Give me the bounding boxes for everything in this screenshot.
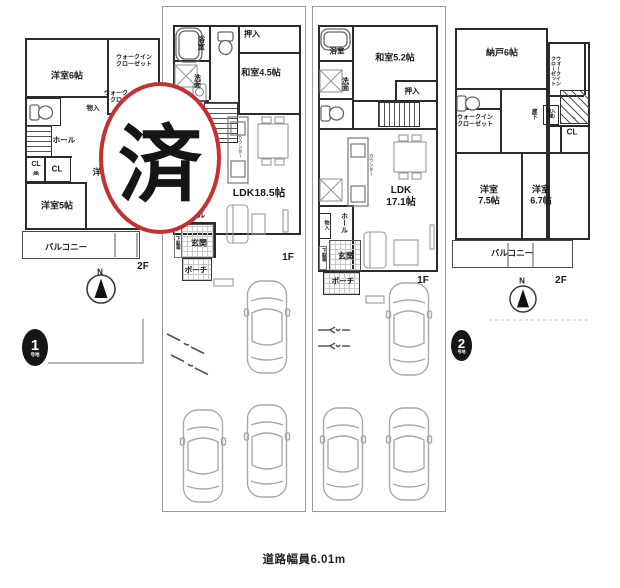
car-icon (245, 281, 290, 373)
room-label-cl1: CL (31, 161, 40, 169)
room-label-ldk: LDK 17.1帖 (386, 185, 415, 209)
compass-icon (87, 275, 115, 303)
kitchen-counter (348, 138, 368, 206)
shoe-cabinet-label: 下駄箱 (176, 236, 181, 250)
lot2-badge-suffix: 号地 (458, 350, 466, 354)
car-icon (245, 405, 290, 497)
lot1-badge-suffix: 号地 (31, 353, 40, 358)
porch-label: ポーチ (185, 267, 208, 276)
washer-pan-icon (320, 179, 342, 201)
balcony-label: バルコニー (45, 242, 87, 252)
room-label-wic-left: ウォークイン クローゼット (457, 115, 493, 129)
compass-north-label: N (97, 267, 103, 276)
washer-pan-icon (320, 70, 342, 92)
room-label-bath: 浴室 (330, 48, 345, 57)
toilet-icon (457, 96, 480, 111)
floor-label-1f: 1F (417, 275, 429, 287)
storage-label: 物入 (324, 220, 329, 230)
room-label-cl1-sub: (棚) (33, 172, 40, 177)
porch-step (214, 279, 384, 303)
balcony-ticks (115, 233, 137, 257)
floor-label-1f: 1F (282, 252, 294, 264)
floor-label-2f: 2F (555, 275, 567, 287)
sofa-tv (227, 205, 434, 268)
room-label-washitsu: 和室5.2帖 (375, 53, 415, 64)
room-label-oshiire: 押入 (244, 29, 260, 38)
room-label-oshiire: 押入 (405, 88, 420, 97)
compass-icon (510, 286, 536, 312)
room-label-ldk: LDK18.5帖 (233, 187, 286, 199)
boundary-line (48, 319, 143, 363)
balcony-label: バルコニー (491, 248, 533, 258)
lot2-badge: 2 号地 (451, 330, 472, 361)
room-label-wic-right: ウォークイン クローゼット (550, 56, 560, 86)
dining-table (394, 135, 426, 179)
room-label-cl2: CL (52, 164, 63, 173)
stray-tick: 、 (572, 111, 581, 122)
room-label-yoshitsu67: 洋室 6.7帖 (530, 184, 552, 205)
dining-table (258, 117, 288, 165)
room-label-washitsu: 和室4.5帖 (241, 68, 281, 79)
sold-stamp: 済 (99, 82, 221, 234)
slope-marks (318, 327, 350, 349)
car-icon (387, 283, 432, 375)
counter-label: カウンター (238, 136, 243, 159)
counter-label: カウンター (369, 154, 374, 177)
room-label-genkan: 玄関 (191, 238, 207, 247)
room-label-nando: 納戸6帖 (486, 48, 518, 59)
lot1-badge: 1 号地 (22, 329, 48, 366)
room-label-hall: ホール (53, 137, 76, 146)
room-label-yoshitsu75: 洋室 7.5帖 (478, 184, 500, 205)
sold-stamp-text: 済 (118, 98, 202, 219)
toilet-icon (321, 106, 344, 121)
lot1-badge-number: 1 (31, 338, 39, 353)
room-label-yoshitsu5: 洋室5帖 (41, 201, 73, 212)
room-label-senmen: 洗面 (194, 74, 201, 88)
toilet-icon (30, 105, 53, 120)
room-label-wic1: ウォークイン クローゼット (116, 55, 152, 69)
storage-label: 物入 (棚) (547, 109, 556, 120)
room-label-monoire: 物入 (87, 105, 100, 113)
floorplan-canvas: 洋室6帖 ウォークイン クローゼット ウォーク クロ 物入 ホール CL (棚)… (0, 0, 620, 588)
room-label-senmen: 洗面 (342, 77, 349, 91)
slope-marks (167, 334, 208, 375)
room-label-cl: CL (567, 127, 578, 136)
corridor-label: 廊下 (530, 109, 536, 120)
compass-north-label: N (519, 276, 525, 285)
car-icon (321, 408, 366, 500)
room-label-hall: ホール (341, 213, 348, 234)
room-label-bath: 浴室 (197, 36, 205, 51)
car-icon (387, 408, 432, 500)
floor-label-2f: 2F (137, 261, 149, 273)
porch-label: ポーチ (332, 278, 355, 287)
shoe-cabinet-label: 下駄箱 (322, 248, 327, 262)
car-icon (181, 410, 226, 502)
room-label-genkan: 玄関 (338, 251, 354, 260)
room-label-yoshitsu6: 洋室6帖 (51, 71, 83, 82)
road-width-label: 道路幅員6.01m (262, 551, 345, 567)
fixtures-layer (0, 0, 620, 588)
toilet-icon (218, 32, 233, 55)
